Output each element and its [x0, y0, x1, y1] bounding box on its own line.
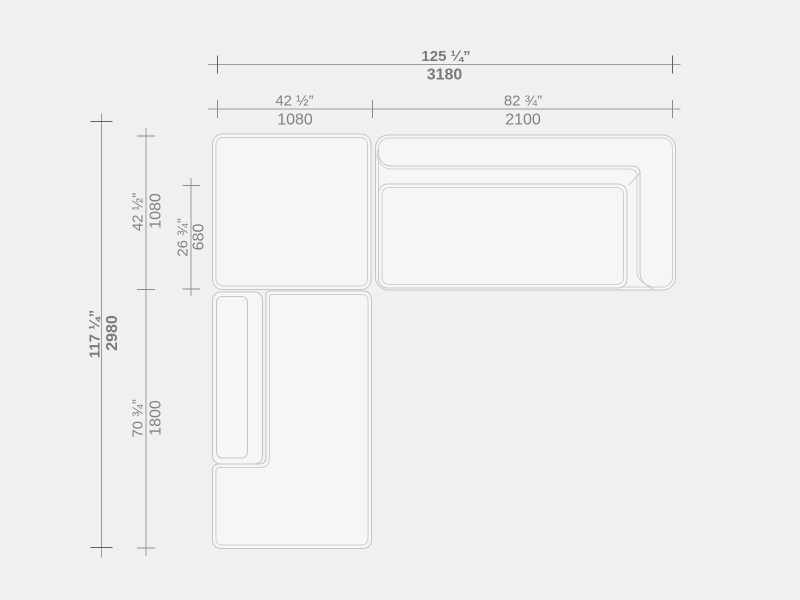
- svg-text:3180: 3180: [427, 67, 463, 84]
- svg-text:70 ¾”: 70 ¾”: [130, 399, 147, 437]
- svg-text:82 ¾”: 82 ¾”: [504, 93, 542, 110]
- svg-text:26 ¾”: 26 ¾”: [175, 218, 192, 256]
- svg-text:2980: 2980: [104, 315, 121, 351]
- svg-text:1080: 1080: [148, 193, 165, 229]
- svg-text:125 ¼”: 125 ¼”: [421, 48, 470, 65]
- svg-text:42 ½”: 42 ½”: [130, 193, 147, 231]
- svg-text:1800: 1800: [148, 400, 165, 436]
- svg-text:117 ¼”: 117 ¼”: [87, 310, 104, 358]
- svg-text:680: 680: [191, 224, 208, 251]
- svg-text:2100: 2100: [505, 112, 541, 129]
- svg-text:1080: 1080: [277, 112, 313, 129]
- svg-text:42 ½”: 42 ½”: [275, 93, 313, 110]
